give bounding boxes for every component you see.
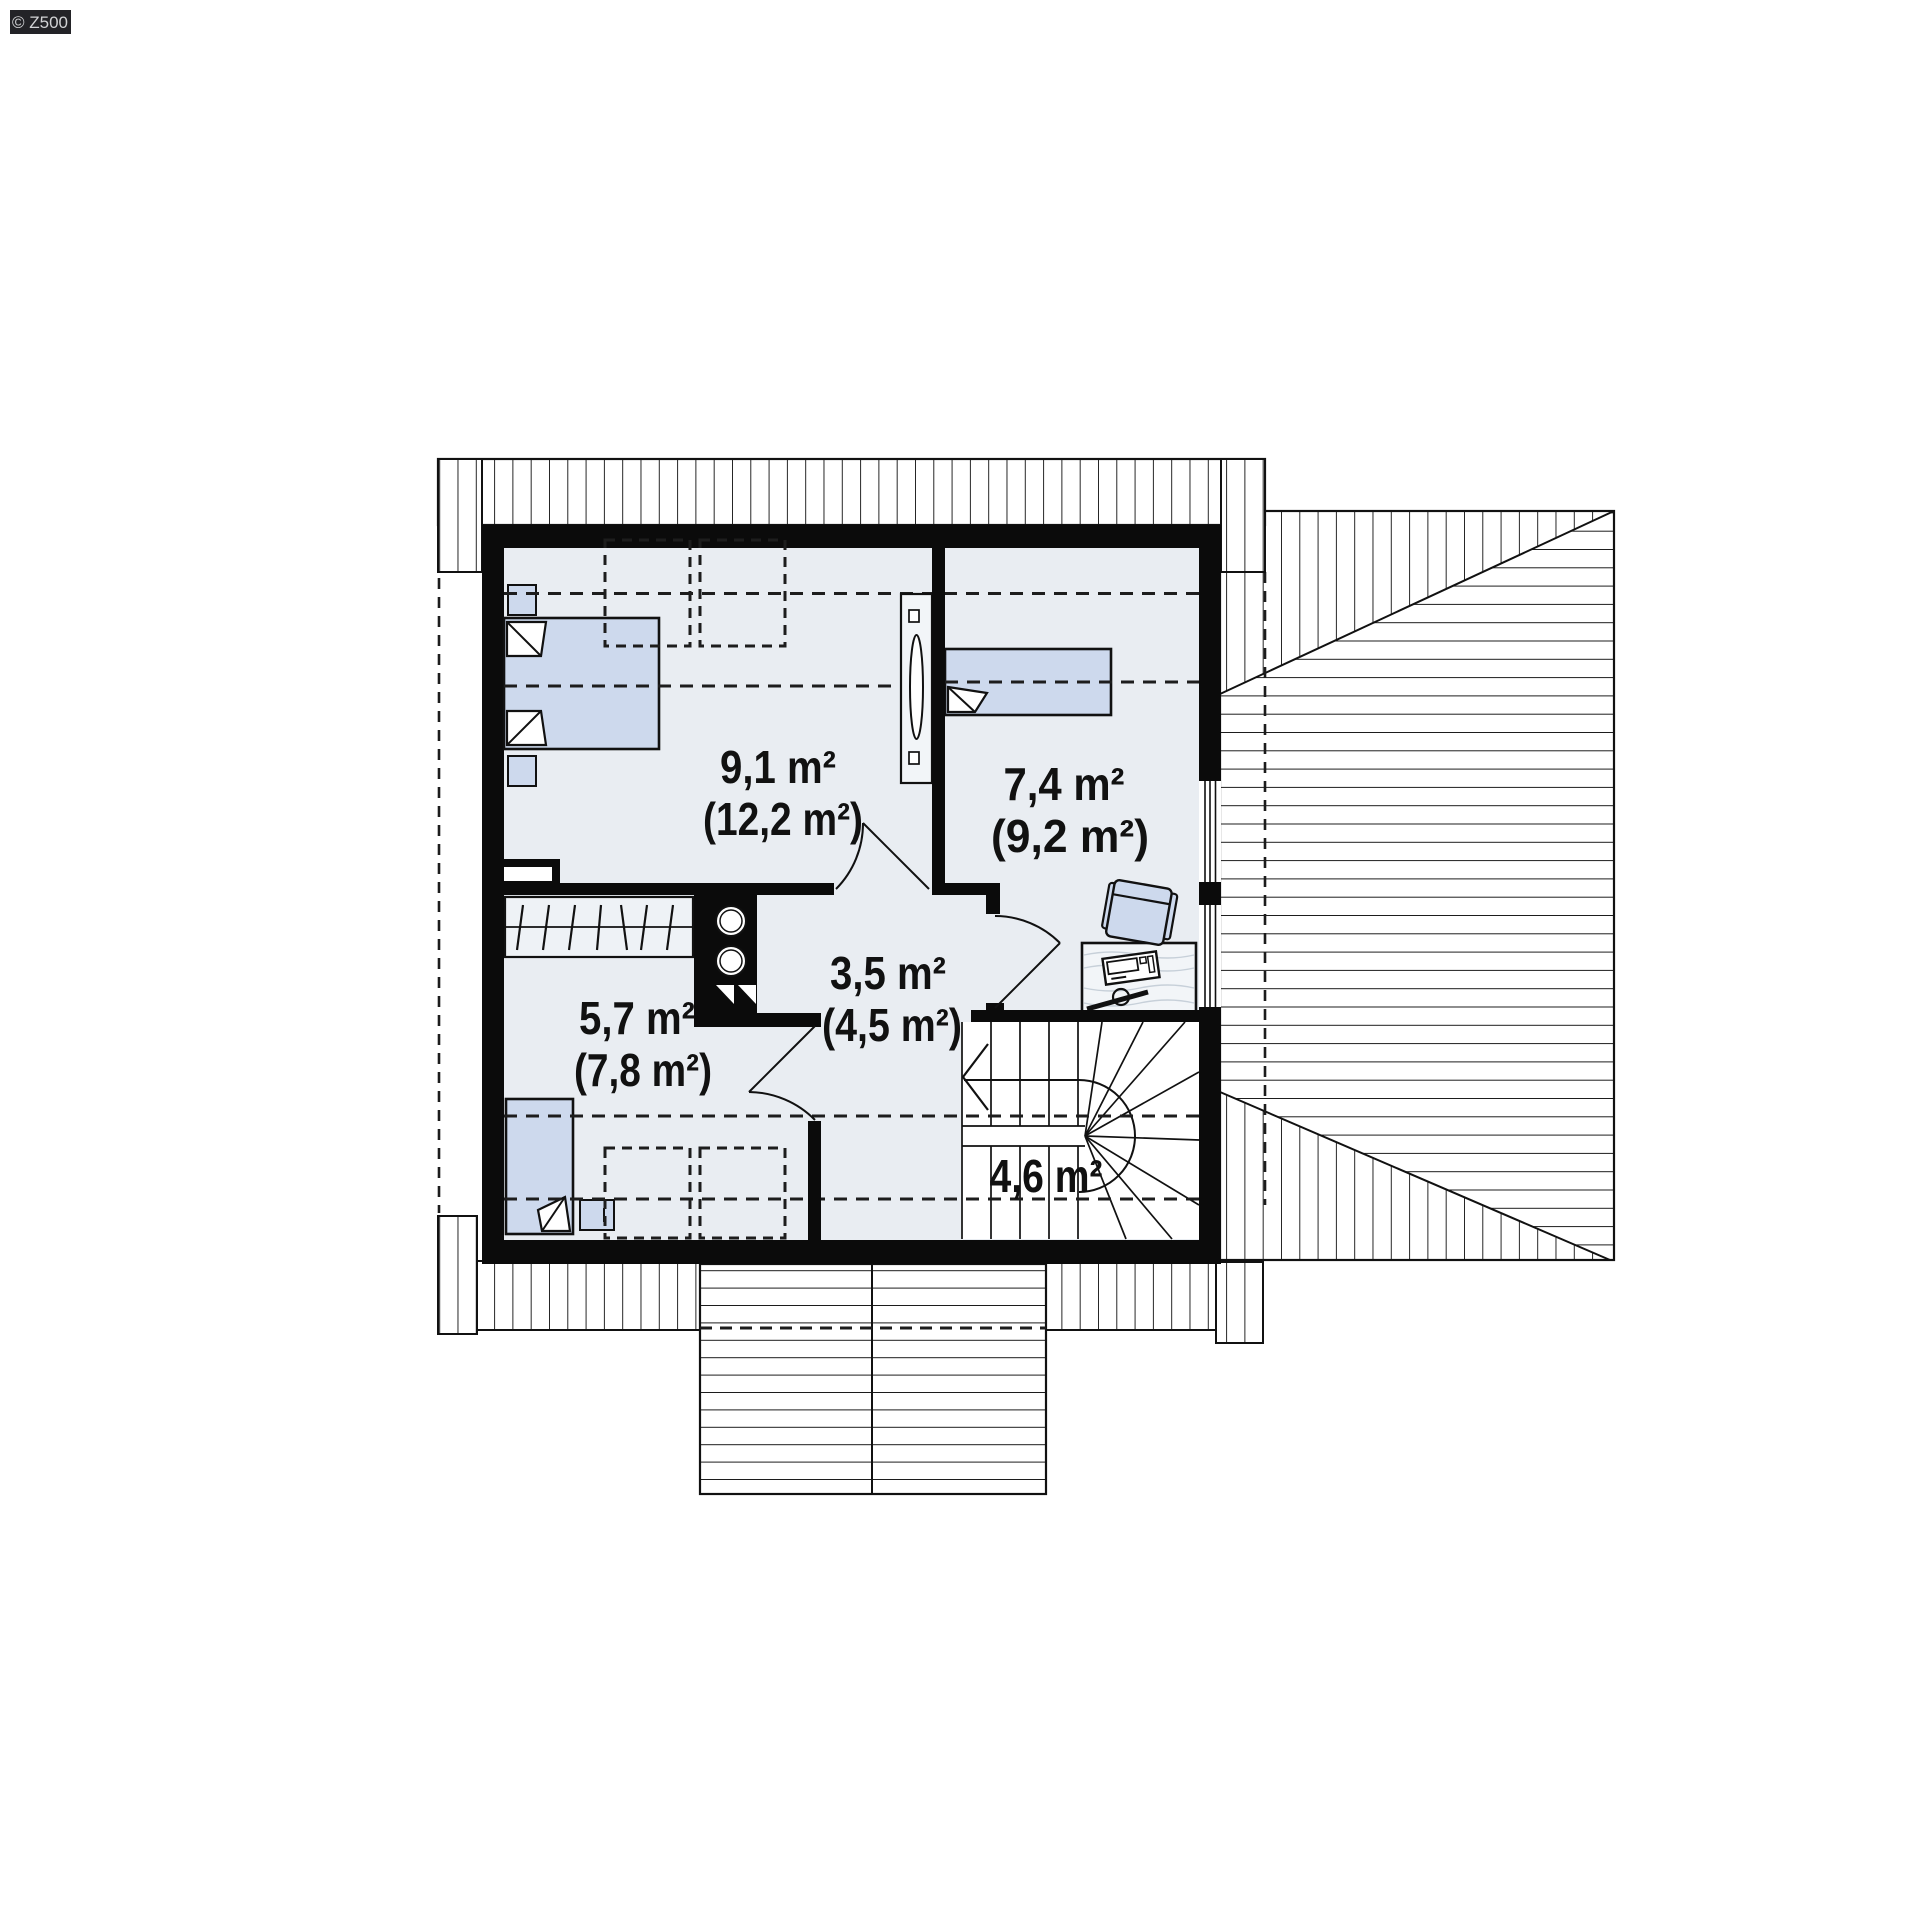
svg-text:7,4 m²: 7,4 m² [1004, 758, 1125, 810]
svg-text:4,6 m²: 4,6 m² [990, 1150, 1103, 1202]
svg-text:© Z500: © Z500 [12, 13, 68, 32]
svg-text:9,1 m²: 9,1 m² [720, 741, 836, 793]
svg-text:(12,2 m²): (12,2 m²) [703, 793, 863, 845]
svg-text:(4,5 m²): (4,5 m²) [822, 999, 962, 1051]
svg-text:(9,2 m²): (9,2 m²) [991, 810, 1149, 862]
svg-text:3,5 m²: 3,5 m² [830, 947, 946, 999]
svg-text:5,7 m²: 5,7 m² [579, 992, 695, 1044]
svg-text:(7,8 m²): (7,8 m²) [574, 1044, 712, 1096]
